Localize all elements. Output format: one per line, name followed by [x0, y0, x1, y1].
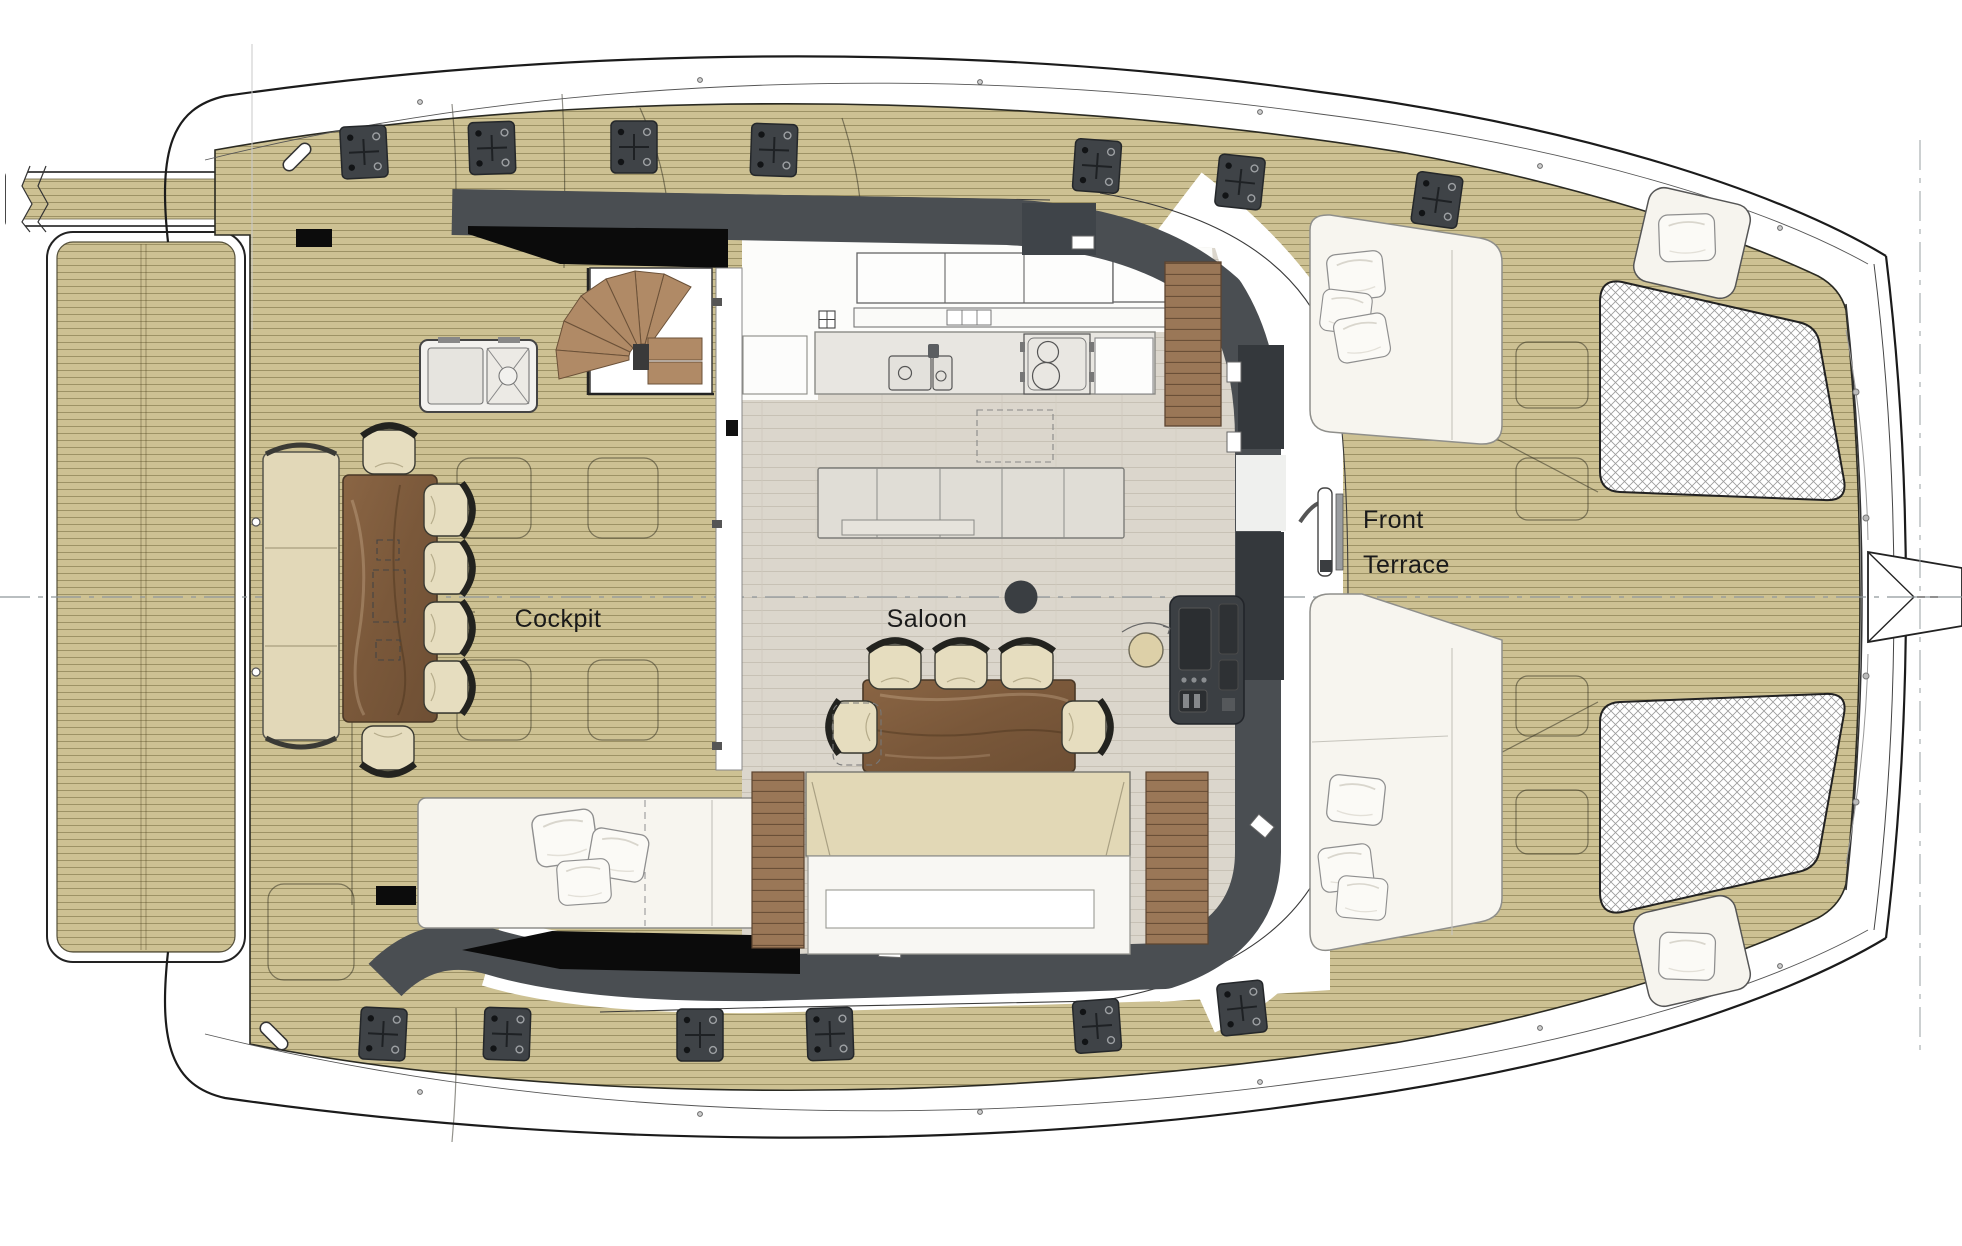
deck-plan-canvas: Cockpit Saloon Front Terrace: [0, 0, 1962, 1246]
galley-end-cabinet: [1095, 338, 1153, 394]
pillow: [556, 858, 612, 906]
galley-shelf: [854, 308, 1188, 327]
saloon-label: Saloon: [887, 605, 968, 633]
front-terrace-label-line2: Terrace: [1363, 551, 1450, 579]
deck-plan-drawing: Cockpit Saloon Front Terrace: [0, 0, 1962, 1246]
sofa-side-table: [1146, 772, 1208, 944]
cockpit-chair: [424, 601, 473, 655]
cockpit-chair: [424, 660, 473, 714]
cockpit-label: Cockpit: [515, 605, 602, 633]
front-terrace-label-line1: Front: [1363, 506, 1424, 534]
cockpit-chair: [361, 726, 415, 775]
cockpit-saloon-door-track: [712, 268, 742, 770]
pillow: [1326, 774, 1386, 826]
pillow: [1658, 213, 1715, 262]
entry-steps-wood: [1165, 262, 1221, 426]
cockpit-sunpad: [418, 798, 802, 928]
cockpit-bench-sofa: [263, 445, 339, 747]
saloon-chair: [934, 641, 988, 690]
pillow: [1658, 932, 1715, 981]
pillow: [1335, 875, 1388, 921]
galley-spice-rack: [947, 310, 991, 325]
saloon-dining-table: [863, 680, 1087, 772]
saloon-chair: [829, 700, 878, 754]
outdoor-sink-grill-unit: [420, 337, 537, 412]
saloon-chair: [868, 641, 922, 690]
mast-post: [1005, 581, 1038, 614]
saloon-chair: [1000, 641, 1054, 690]
navigation-console: [1170, 596, 1244, 724]
deck-vent: [376, 886, 416, 905]
cockpit-chair: [362, 426, 416, 475]
skylight-icon: [819, 311, 835, 328]
saloon-chair: [1062, 700, 1111, 754]
cockpit-chair: [424, 541, 473, 595]
pillow: [1332, 312, 1392, 365]
cockpit-dining-table: [343, 475, 437, 722]
galley-stove: [1020, 334, 1094, 394]
island-sideboard: [818, 468, 1124, 538]
cockpit-chair: [424, 483, 473, 537]
sofa-side-table: [752, 772, 804, 948]
deck-vent: [296, 229, 332, 247]
